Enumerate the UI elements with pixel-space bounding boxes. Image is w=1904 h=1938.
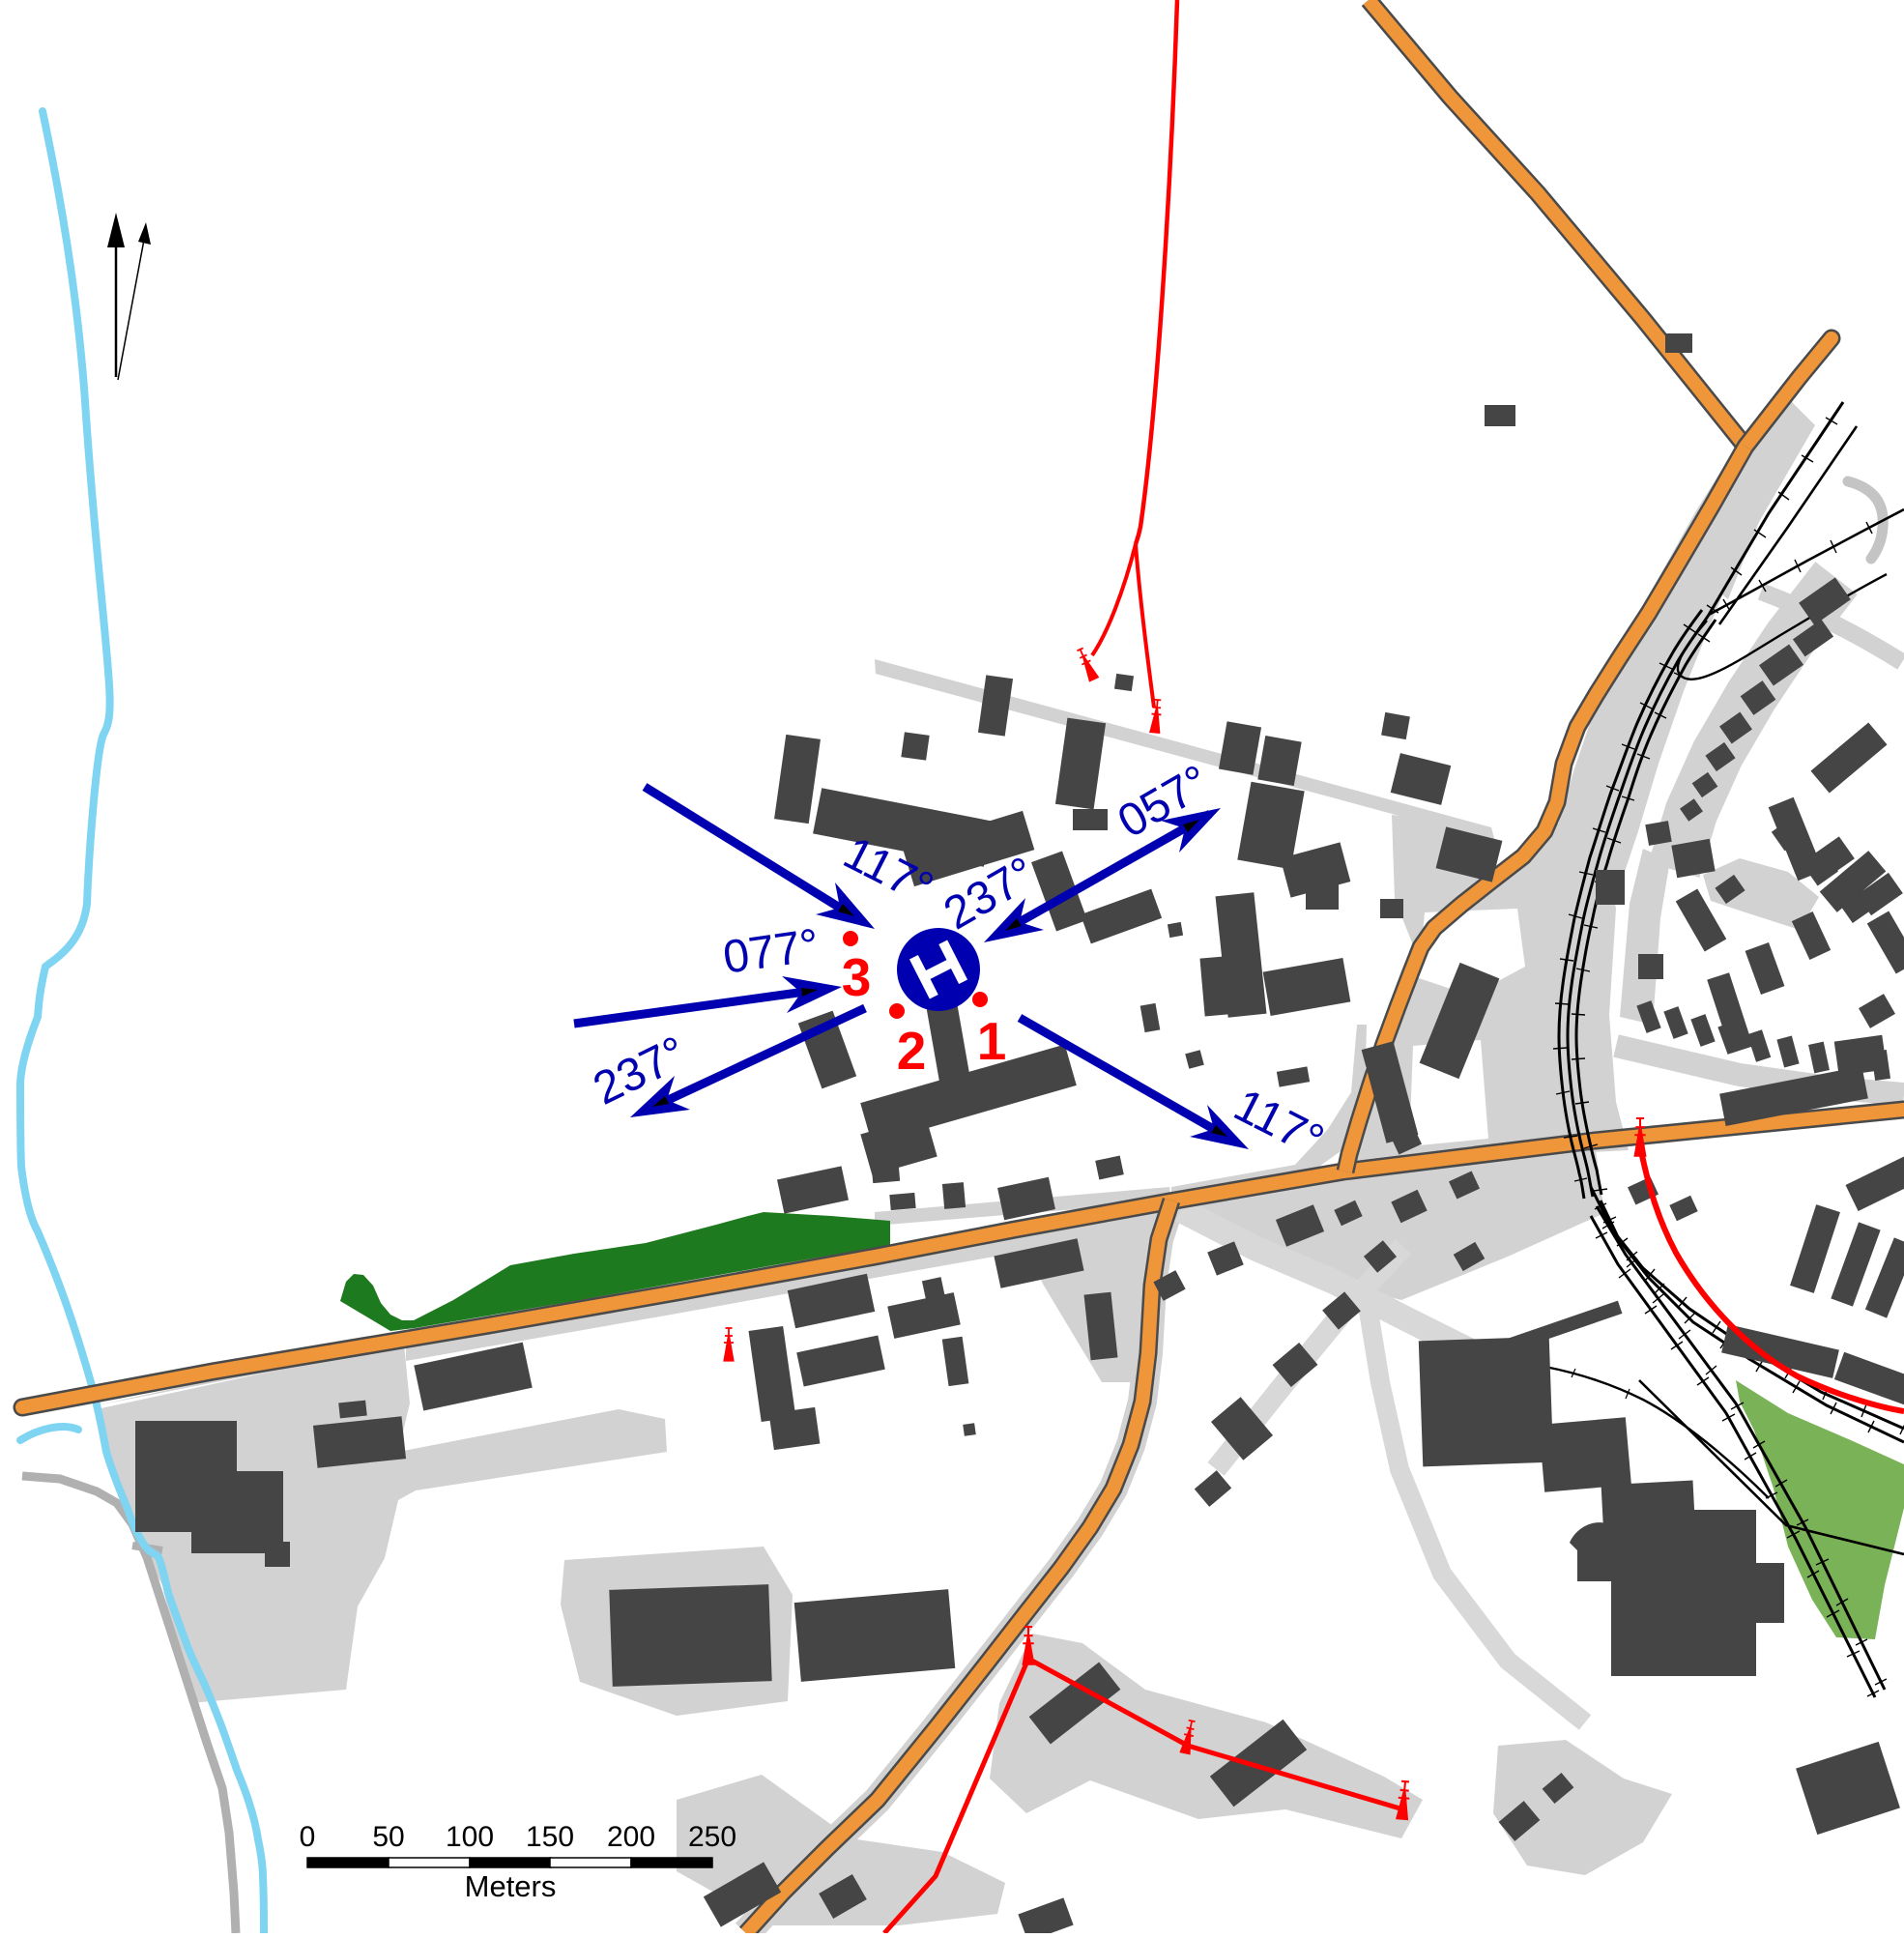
svg-text:50: 50 bbox=[372, 1821, 404, 1853]
svg-text:3: 3 bbox=[842, 947, 872, 1007]
svg-text:Meters: Meters bbox=[465, 1869, 557, 1903]
svg-text:100: 100 bbox=[446, 1821, 494, 1853]
svg-text:0: 0 bbox=[300, 1821, 316, 1853]
svg-text:150: 150 bbox=[526, 1821, 574, 1853]
svg-text:1: 1 bbox=[977, 1011, 1007, 1071]
svg-text:200: 200 bbox=[607, 1821, 655, 1853]
svg-text:250: 250 bbox=[688, 1821, 736, 1853]
svg-text:2: 2 bbox=[897, 1021, 927, 1081]
